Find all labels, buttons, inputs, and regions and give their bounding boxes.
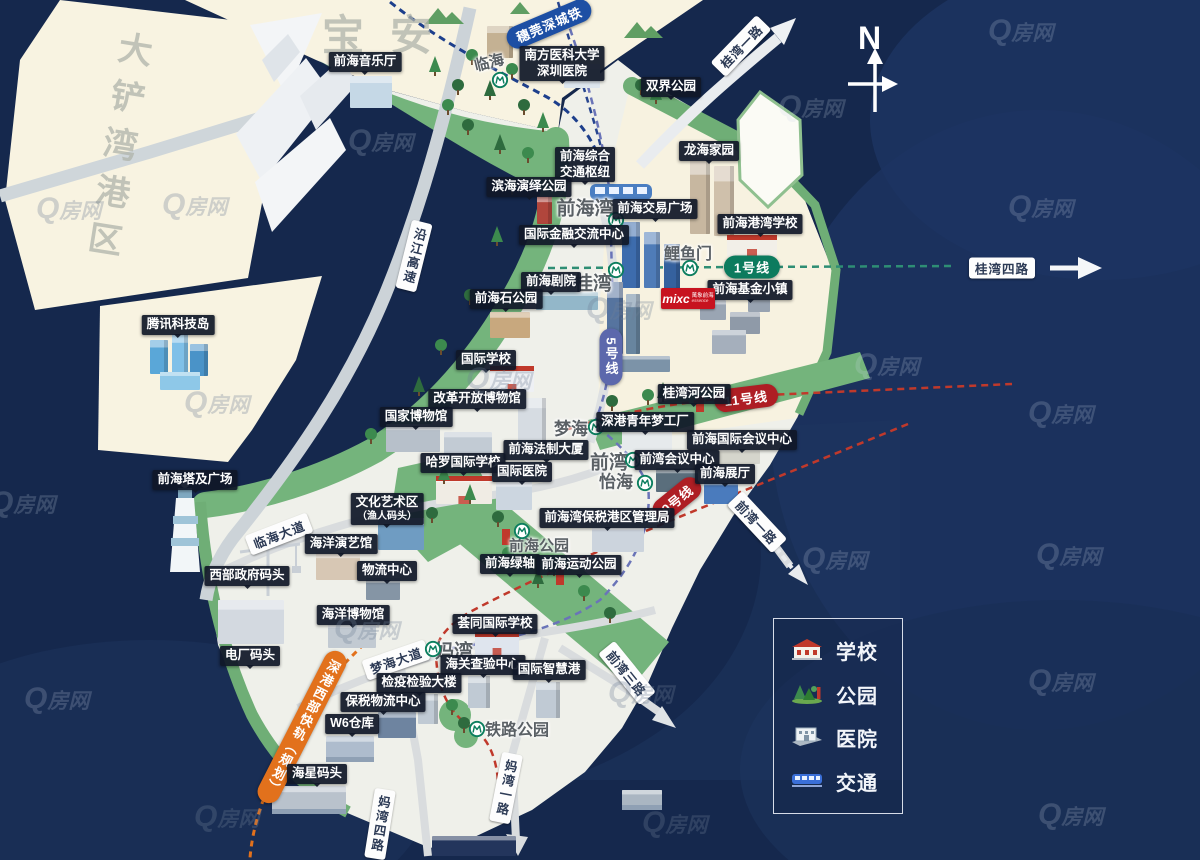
metro-line-badge: 穗莞深城铁	[503, 0, 595, 52]
school-icon	[790, 635, 824, 666]
compass: N	[838, 20, 881, 57]
poi-label: 前海塔及广场	[152, 470, 237, 490]
metro-line-badge: 5号线	[600, 328, 623, 385]
road-label: 桂湾一路	[711, 15, 772, 77]
station-label: 前海湾	[556, 194, 613, 221]
road-label: 前湾三路	[598, 641, 656, 706]
watermark: Q房网	[162, 188, 227, 222]
poi-label: 桂湾河公园	[658, 384, 731, 404]
poi-label: 保税物流中心	[340, 692, 425, 712]
poi-label: 西部政府码头	[204, 566, 289, 586]
road-label: 临海大道	[244, 512, 313, 555]
station-label: 怡海	[599, 468, 633, 493]
metro-station-icon	[682, 260, 699, 277]
poi-label: 电厂码头	[220, 646, 280, 666]
watermark: Q房网	[778, 90, 843, 124]
hospital-icon	[790, 722, 824, 753]
station-label: 铁路公园	[485, 716, 549, 740]
watermark: Q房网	[802, 542, 867, 576]
map-legend: 学校 公园 医院 交通	[773, 618, 903, 814]
poi-label: 前海湾保税港区管理局	[539, 508, 674, 528]
project-name-en: essence	[692, 299, 714, 304]
poi-label: 文化艺术区（渔人码头）	[351, 493, 424, 525]
station-label: 梦海	[554, 415, 588, 440]
legend-label: 交通	[836, 767, 878, 796]
poi-label: 荟同国际学校	[452, 614, 537, 634]
watermark: Q房网	[184, 386, 249, 420]
poi-label: 海星码头	[287, 764, 347, 784]
metro-station-icon	[608, 262, 625, 279]
poi-label: 前海展厅	[695, 464, 755, 484]
watermark: Q房网	[988, 14, 1053, 48]
watermark: Q房网	[642, 806, 707, 840]
map-labels-layer: 前海音乐厅南方医科大学深圳医院双界公园龙海家园前海综合交通枢纽滨海演绎公园前海交…	[0, 0, 1200, 860]
poi-label: 改革开放博物馆	[428, 389, 526, 409]
poi-label: 前海运动公园	[536, 555, 621, 575]
poi-label: 滨海演绎公园	[486, 177, 571, 197]
poi-label: 前海绿轴	[480, 554, 540, 574]
legend-label: 学校	[836, 636, 878, 665]
poi-label: 双界公园	[641, 77, 701, 97]
legend-row-school: 学校	[774, 635, 902, 666]
watermark: Q房网	[1038, 798, 1103, 832]
watermark: Q房网	[1028, 396, 1093, 430]
park-icon	[790, 679, 824, 710]
legend-row-transport: 交通	[774, 766, 902, 797]
poi-label: 前海石公园	[470, 289, 543, 309]
metro-station-icon	[492, 72, 509, 89]
watermark: Q房网	[854, 348, 919, 382]
poi-label: 前海国际会议中心	[687, 430, 797, 450]
poi-label: 物流中心	[357, 561, 417, 581]
poi-label: W6仓库	[325, 714, 379, 734]
road-label: 前湾一路	[727, 491, 787, 554]
poi-label: 腾讯科技岛	[142, 315, 215, 335]
poi-label: 前海港湾学校	[717, 214, 802, 234]
mixc-logo: mixc	[662, 292, 689, 306]
qianhai-map: 前海音乐厅南方医科大学深圳医院双界公园龙海家园前海综合交通枢纽滨海演绎公园前海交…	[0, 0, 1200, 860]
watermark: Q房网	[1008, 190, 1073, 224]
poi-label: 海洋博物馆	[317, 605, 390, 625]
poi-label: 国际医院	[492, 462, 552, 482]
legend-label: 医院	[836, 723, 878, 752]
legend-label: 公园	[836, 680, 878, 709]
watermark: Q房网	[348, 124, 413, 158]
poi-label: 检疫检验大楼	[376, 673, 461, 693]
poi-label: 前海法制大厦	[503, 440, 588, 460]
area-name: 大铲湾港区	[74, 28, 160, 273]
poi-label: 前海基金小镇	[707, 280, 792, 300]
watermark: Q房网	[24, 682, 89, 716]
metro-station-icon	[425, 641, 442, 658]
poi-label: 国际金融交流中心	[519, 225, 629, 245]
compass-north-label: N	[858, 20, 881, 57]
metro-station-icon	[514, 523, 531, 540]
poi-label: 国家博物馆	[380, 407, 453, 427]
poi-label: 南方医科大学深圳医院	[519, 46, 604, 81]
road-label: 妈湾一路	[489, 752, 523, 825]
metro-station-icon	[637, 475, 654, 492]
road-label: 妈湾四路	[364, 788, 396, 860]
watermark: Q房网	[1028, 664, 1093, 698]
road-label: 沿江高速	[395, 219, 432, 292]
legend-row-park: 公园	[774, 679, 902, 710]
metro-line-badge: 1号线	[724, 256, 780, 279]
metro-station-icon	[469, 721, 486, 738]
watermark: Q房网	[586, 292, 651, 326]
poi-label: 前海音乐厅	[329, 52, 402, 72]
poi-label: 海洋演艺馆	[305, 534, 378, 554]
watermark: Q房网	[194, 800, 259, 834]
project-logo-badge: mixc 萬象前海 essence	[661, 288, 715, 309]
poi-label: 前海交易广场	[612, 199, 697, 219]
transport-icon	[790, 766, 824, 797]
poi-label: 龙海家园	[679, 141, 739, 161]
watermark: Q房网	[1036, 538, 1101, 572]
poi-label: 国际智慧港	[513, 660, 586, 680]
legend-row-hospital: 医院	[774, 722, 902, 753]
poi-label: 深港青年梦工厂	[596, 412, 694, 432]
road-label: 桂湾四路	[969, 258, 1035, 279]
watermark: Q房网	[0, 486, 55, 520]
poi-label: 国际学校	[456, 350, 516, 370]
